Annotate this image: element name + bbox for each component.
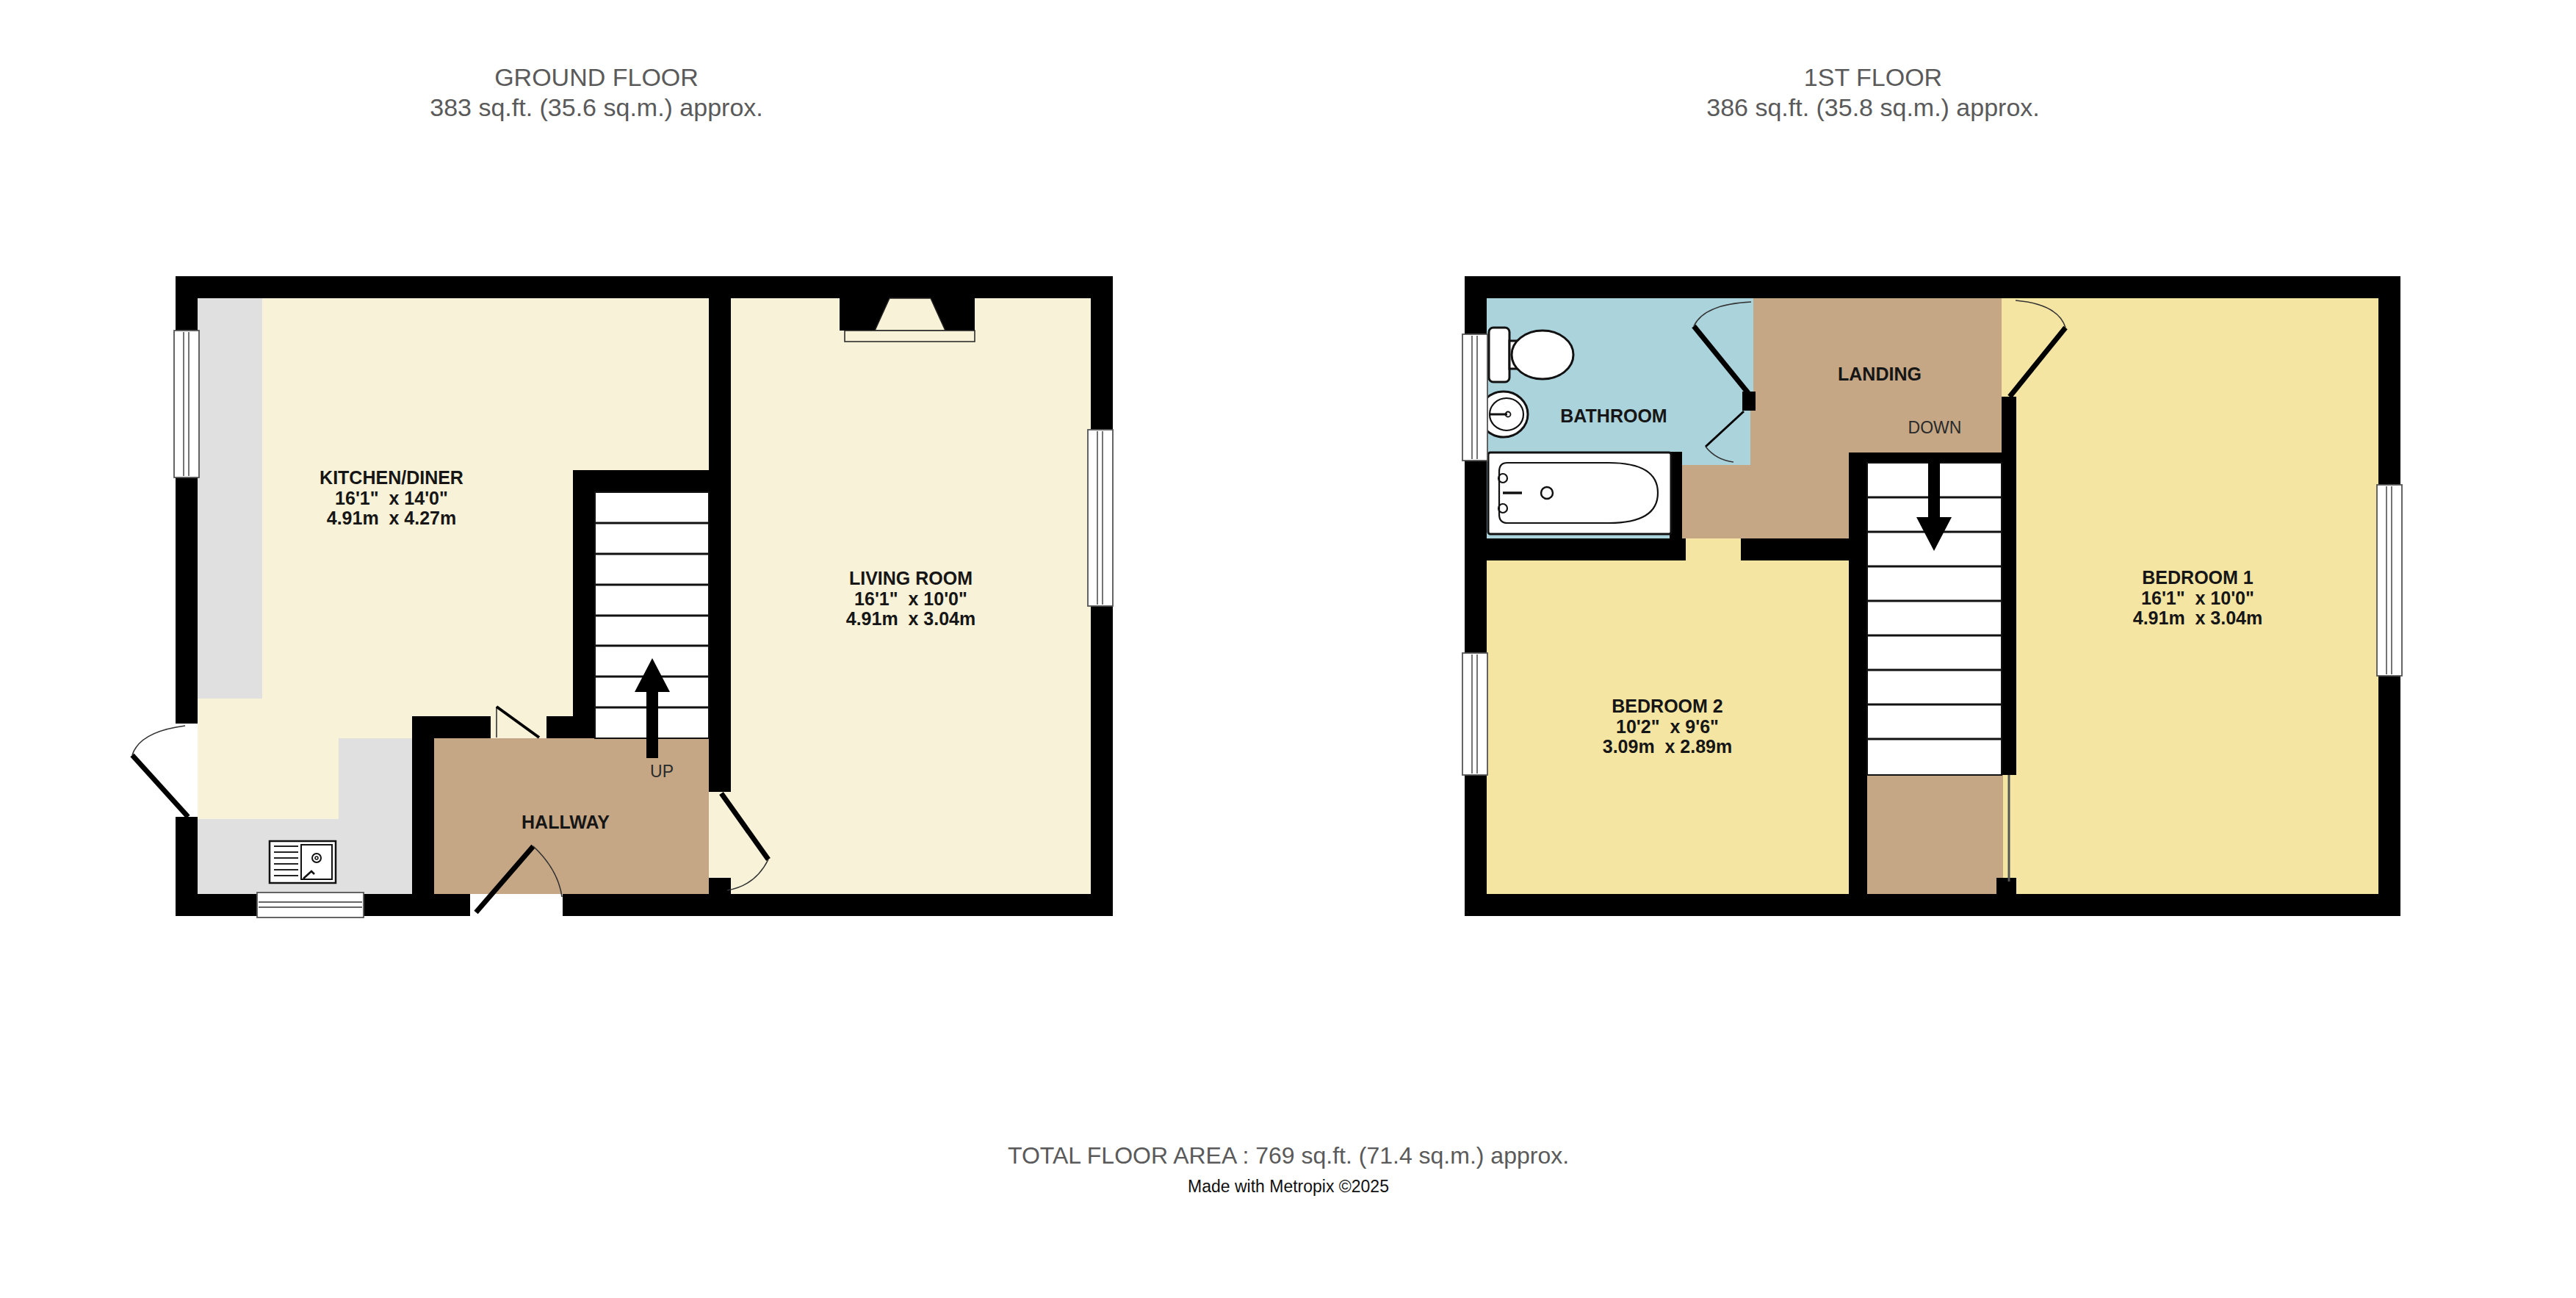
kitchen-dim-metric: 4.91m x 4.27m bbox=[327, 508, 457, 528]
bedroom1-window bbox=[2377, 485, 2402, 676]
kitchen-label: KITCHEN/DINER bbox=[320, 467, 463, 488]
metropix-credit: Made with Metropix ©2025 bbox=[1188, 1177, 1389, 1196]
hallway-label: HALLWAY bbox=[522, 812, 610, 832]
living-room-dim-imperial: 16'1" x 10'0" bbox=[854, 588, 967, 609]
ground-floor-title: GROUND FLOOR bbox=[494, 63, 699, 91]
kitchen-rear-window bbox=[257, 893, 364, 917]
staircase-up bbox=[595, 492, 709, 758]
kitchen-window bbox=[174, 331, 199, 477]
first-floor-area: 386 sq.ft. (35.8 sq.m.) approx. bbox=[1706, 93, 2040, 121]
living-room-window bbox=[1088, 430, 1113, 606]
bathroom-label: BATHROOM bbox=[1560, 405, 1667, 426]
stairs-up-label: UP bbox=[650, 762, 674, 781]
living-room-dim-metric: 4.91m x 3.04m bbox=[846, 608, 976, 629]
side-door bbox=[132, 724, 198, 817]
toilet-icon bbox=[1489, 328, 1573, 382]
first-floor-title: 1ST FLOOR bbox=[1804, 63, 1942, 91]
landing-label: LANDING bbox=[1838, 364, 1922, 384]
bedroom2-dim-imperial: 10'2" x 9'6" bbox=[1616, 716, 1719, 737]
ground-floor-area: 383 sq.ft. (35.6 sq.m.) approx. bbox=[430, 93, 763, 121]
bedroom2-door bbox=[1686, 538, 1741, 560]
footer: TOTAL FLOOR AREA : 769 sq.ft. (71.4 sq.m… bbox=[1008, 1142, 1569, 1196]
bedroom2-window bbox=[1462, 653, 1487, 775]
fireplace-icon bbox=[840, 298, 975, 342]
floorplan-canvas: GROUND FLOOR 383 sq.ft. (35.6 sq.m.) app… bbox=[0, 0, 2576, 1298]
kitchen-dim-imperial: 16'1" x 14'0" bbox=[335, 488, 448, 508]
floorplan-svg: GROUND FLOOR 383 sq.ft. (35.6 sq.m.) app… bbox=[0, 0, 2576, 1298]
first-floor-plan: 1ST FLOOR 386 sq.ft. (35.8 sq.m.) approx… bbox=[1462, 63, 2402, 916]
kitchen-sink-icon bbox=[270, 841, 336, 883]
total-floor-area: TOTAL FLOOR AREA : 769 sq.ft. (71.4 sq.m… bbox=[1008, 1142, 1569, 1169]
ground-floor-plan: GROUND FLOOR 383 sq.ft. (35.6 sq.m.) app… bbox=[132, 63, 1113, 917]
bedroom1-dim-metric: 4.91m x 3.04m bbox=[2133, 607, 2263, 628]
bath-icon bbox=[1488, 453, 1671, 534]
bedroom1-label: BEDROOM 1 bbox=[2142, 567, 2254, 588]
staircase-down bbox=[1867, 457, 2002, 775]
bedroom2-dim-metric: 3.09m x 2.89m bbox=[1603, 736, 1733, 757]
living-room-label: LIVING ROOM bbox=[849, 568, 973, 588]
stairs-down-label: DOWN bbox=[1908, 418, 1962, 437]
bedroom1-dim-imperial: 16'1" x 10'0" bbox=[2141, 588, 2254, 608]
bathroom-window bbox=[1462, 334, 1487, 461]
bedroom2-label: BEDROOM 2 bbox=[1612, 696, 1722, 716]
